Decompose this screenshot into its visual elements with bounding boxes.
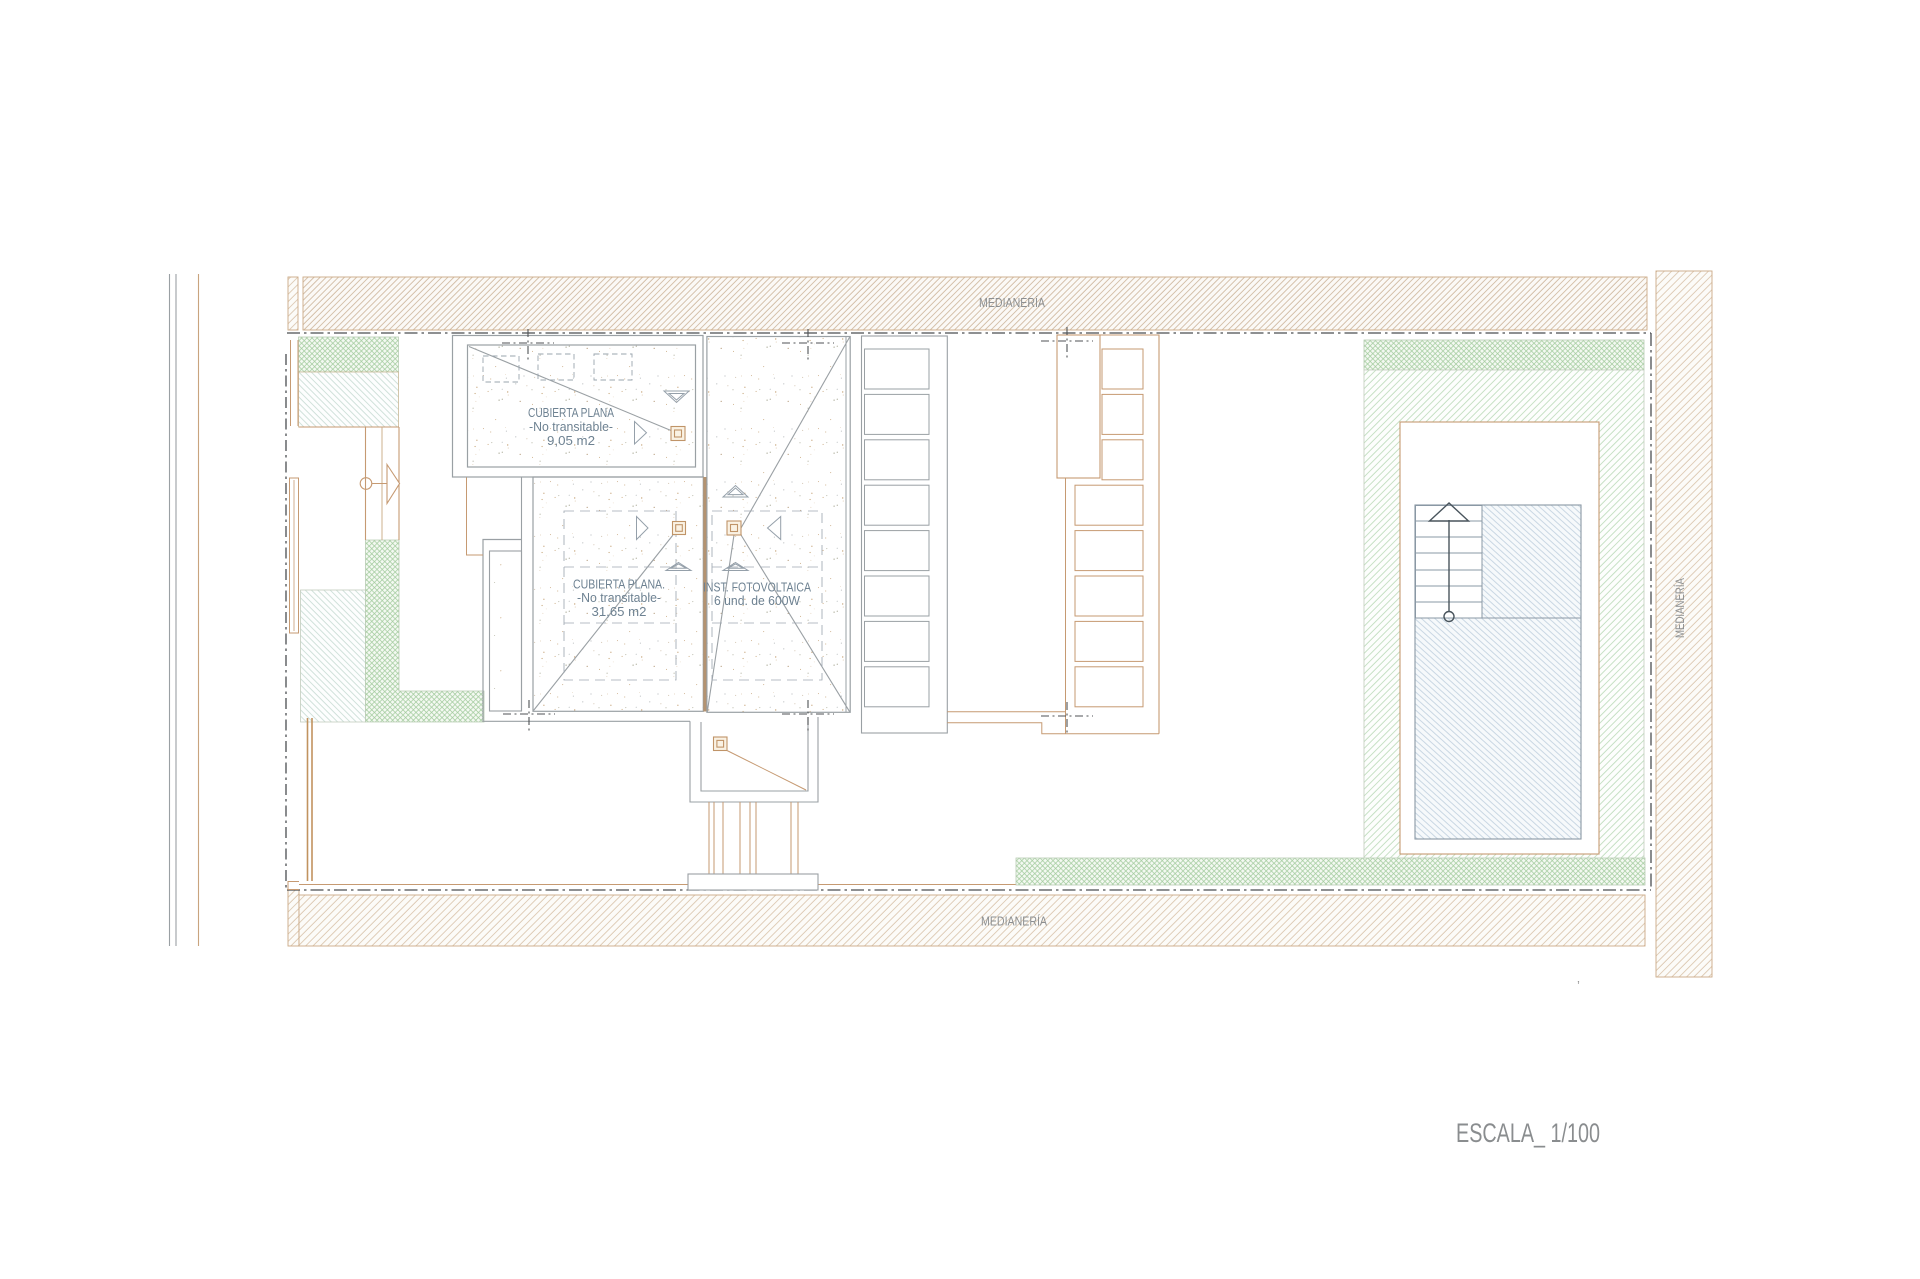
svg-text:-No transitable-: -No transitable- <box>529 420 613 434</box>
svg-text:6 und. de 600W: 6 und. de 600W <box>714 594 800 608</box>
svg-text:-No transitable-: -No transitable- <box>577 591 661 605</box>
svg-text:9,05 m2: 9,05 m2 <box>547 434 595 448</box>
svg-text:ESCALA_ 1/100: ESCALA_ 1/100 <box>1456 1118 1600 1148</box>
svg-text:CUBIERTA PLANA: CUBIERTA PLANA <box>528 405 614 420</box>
svg-text:’: ’ <box>1577 978 1580 993</box>
svg-text:MEDIANERÍA: MEDIANERÍA <box>979 295 1046 310</box>
svg-text:31,65 m2: 31,65 m2 <box>592 605 647 619</box>
svg-text:MEDIANERÍA: MEDIANERÍA <box>981 914 1048 929</box>
svg-text:CUBIERTA PLANA.: CUBIERTA PLANA. <box>573 577 665 592</box>
svg-text:MEDIANERÍA: MEDIANERÍA <box>1672 578 1687 638</box>
svg-text:INST. FOTOVOLTAICA: INST. FOTOVOLTAICA <box>703 580 811 595</box>
